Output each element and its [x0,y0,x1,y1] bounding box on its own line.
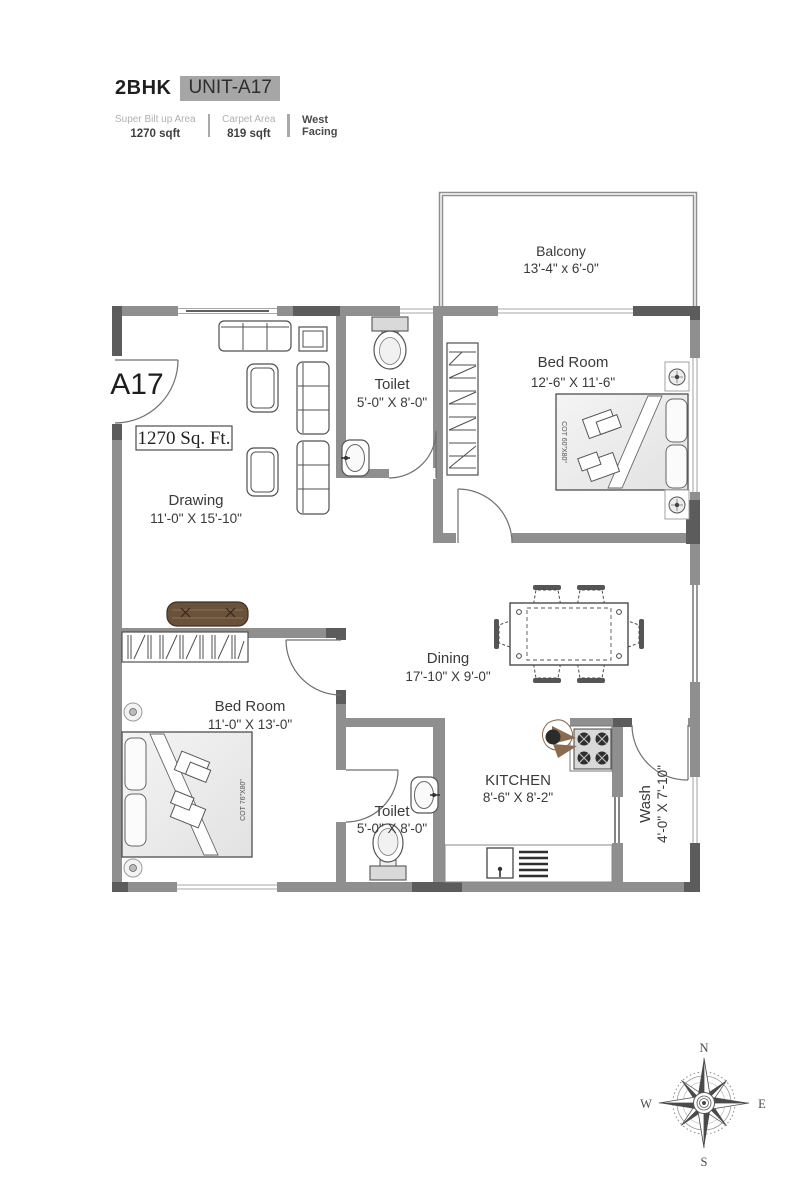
sofa-set [219,321,329,514]
unit-tag: A17 [110,368,163,401]
kitchen-counter [445,845,612,882]
drawing-window [178,306,277,316]
room-label-bedroom1: Bed Room 12'-6" X 11'-6" [531,354,615,390]
bedroom2-name: Bed Room [215,698,286,715]
room-label-bedroom2: Bed Room 11'-0" X 13'-0" [208,698,292,732]
stove-icon [570,726,612,771]
kitchen-name: KITCHEN [485,772,551,789]
bedroom2-door-arc [286,640,341,695]
bedroom2-window [177,882,277,892]
basin-icon [341,440,369,476]
room-label-drawing: Drawing 11'-0" X 15'-10" [150,492,242,526]
wash-window [690,777,700,843]
tv-console [167,602,248,626]
basin-icon [411,777,440,813]
wash-name: Wash [637,785,654,823]
bedroom2-dims: 11'-0" X 13'-0" [208,717,292,732]
bed: COT 60"X80" [556,394,688,490]
compass-rose: N E S W [640,1041,766,1169]
bedside-lamp [665,362,689,391]
bed: COT 76"X80" [122,732,252,857]
toilet2-dims: 5'-0" X 8'-0" [357,821,427,836]
dining-table [494,585,644,683]
compass-west-label: W [640,1097,652,1111]
wardrobe [447,343,478,475]
area-tag-box: 1270 Sq. Ft. [136,426,232,450]
compass-south-label: S [701,1155,708,1169]
compass-north-label: N [699,1041,708,1055]
kitchen-dims: 8'-6" X 8'-2" [483,790,553,805]
area-tag: 1270 Sq. Ft. [138,428,231,449]
bedside-lamp [124,859,142,877]
sink-icon [487,848,513,878]
room-label-balcony: Balcony 13'-4" x 6'-0" [523,243,599,276]
dining-window [690,585,700,682]
room-label-kitchen: KITCHEN 8'-6" X 8'-2" [483,772,553,805]
bedroom1-dims: 12'-6" X 11'-6" [531,375,615,390]
toilet1-name: Toilet [374,376,410,393]
bedroom1-window [690,358,700,492]
toilet1-dims: 5'-0" X 8'-0" [357,395,427,410]
bedside-lamp [124,703,142,721]
room-label-dining: Dining 17'-10" X 9'-0" [405,650,490,684]
bedside-lamp [665,490,689,519]
room-label-toilet1: Toilet 5'-0" X 8'-0" [357,376,427,410]
balcony-name: Balcony [536,243,586,259]
drawing-name: Drawing [168,492,223,509]
bedroom1-balcony-window [498,306,633,316]
dining-dims: 17'-10" X 9'-0" [405,669,490,684]
kitchen-service-window [612,797,623,843]
drawing-dims: 11'-0" X 15'-10" [150,511,242,526]
bedroom1-name: Bed Room [538,354,609,371]
cot-size-label: COT 60"X80" [560,421,567,463]
cot-size-label: COT 76"X80" [240,779,247,821]
toilet2-name: Toilet [374,803,410,820]
floor-plan: COT 60"X80" [0,0,794,1188]
balcony-dims: 13'-4" x 6'-0" [523,261,599,276]
compass-east-label: E [758,1097,766,1111]
wash-dims: 4'-0" X 7'-10" [655,765,670,843]
room-label-wash: Wash 4'-0" X 7'-10" [637,765,670,843]
dining-name: Dining [427,650,470,667]
floorplan-page: 2BHK UNIT-A17 Super Bilt up Area 1270 sq… [0,0,794,1188]
wardrobe [122,632,248,662]
wc-icon [372,317,408,369]
toilet1-window [400,306,433,316]
